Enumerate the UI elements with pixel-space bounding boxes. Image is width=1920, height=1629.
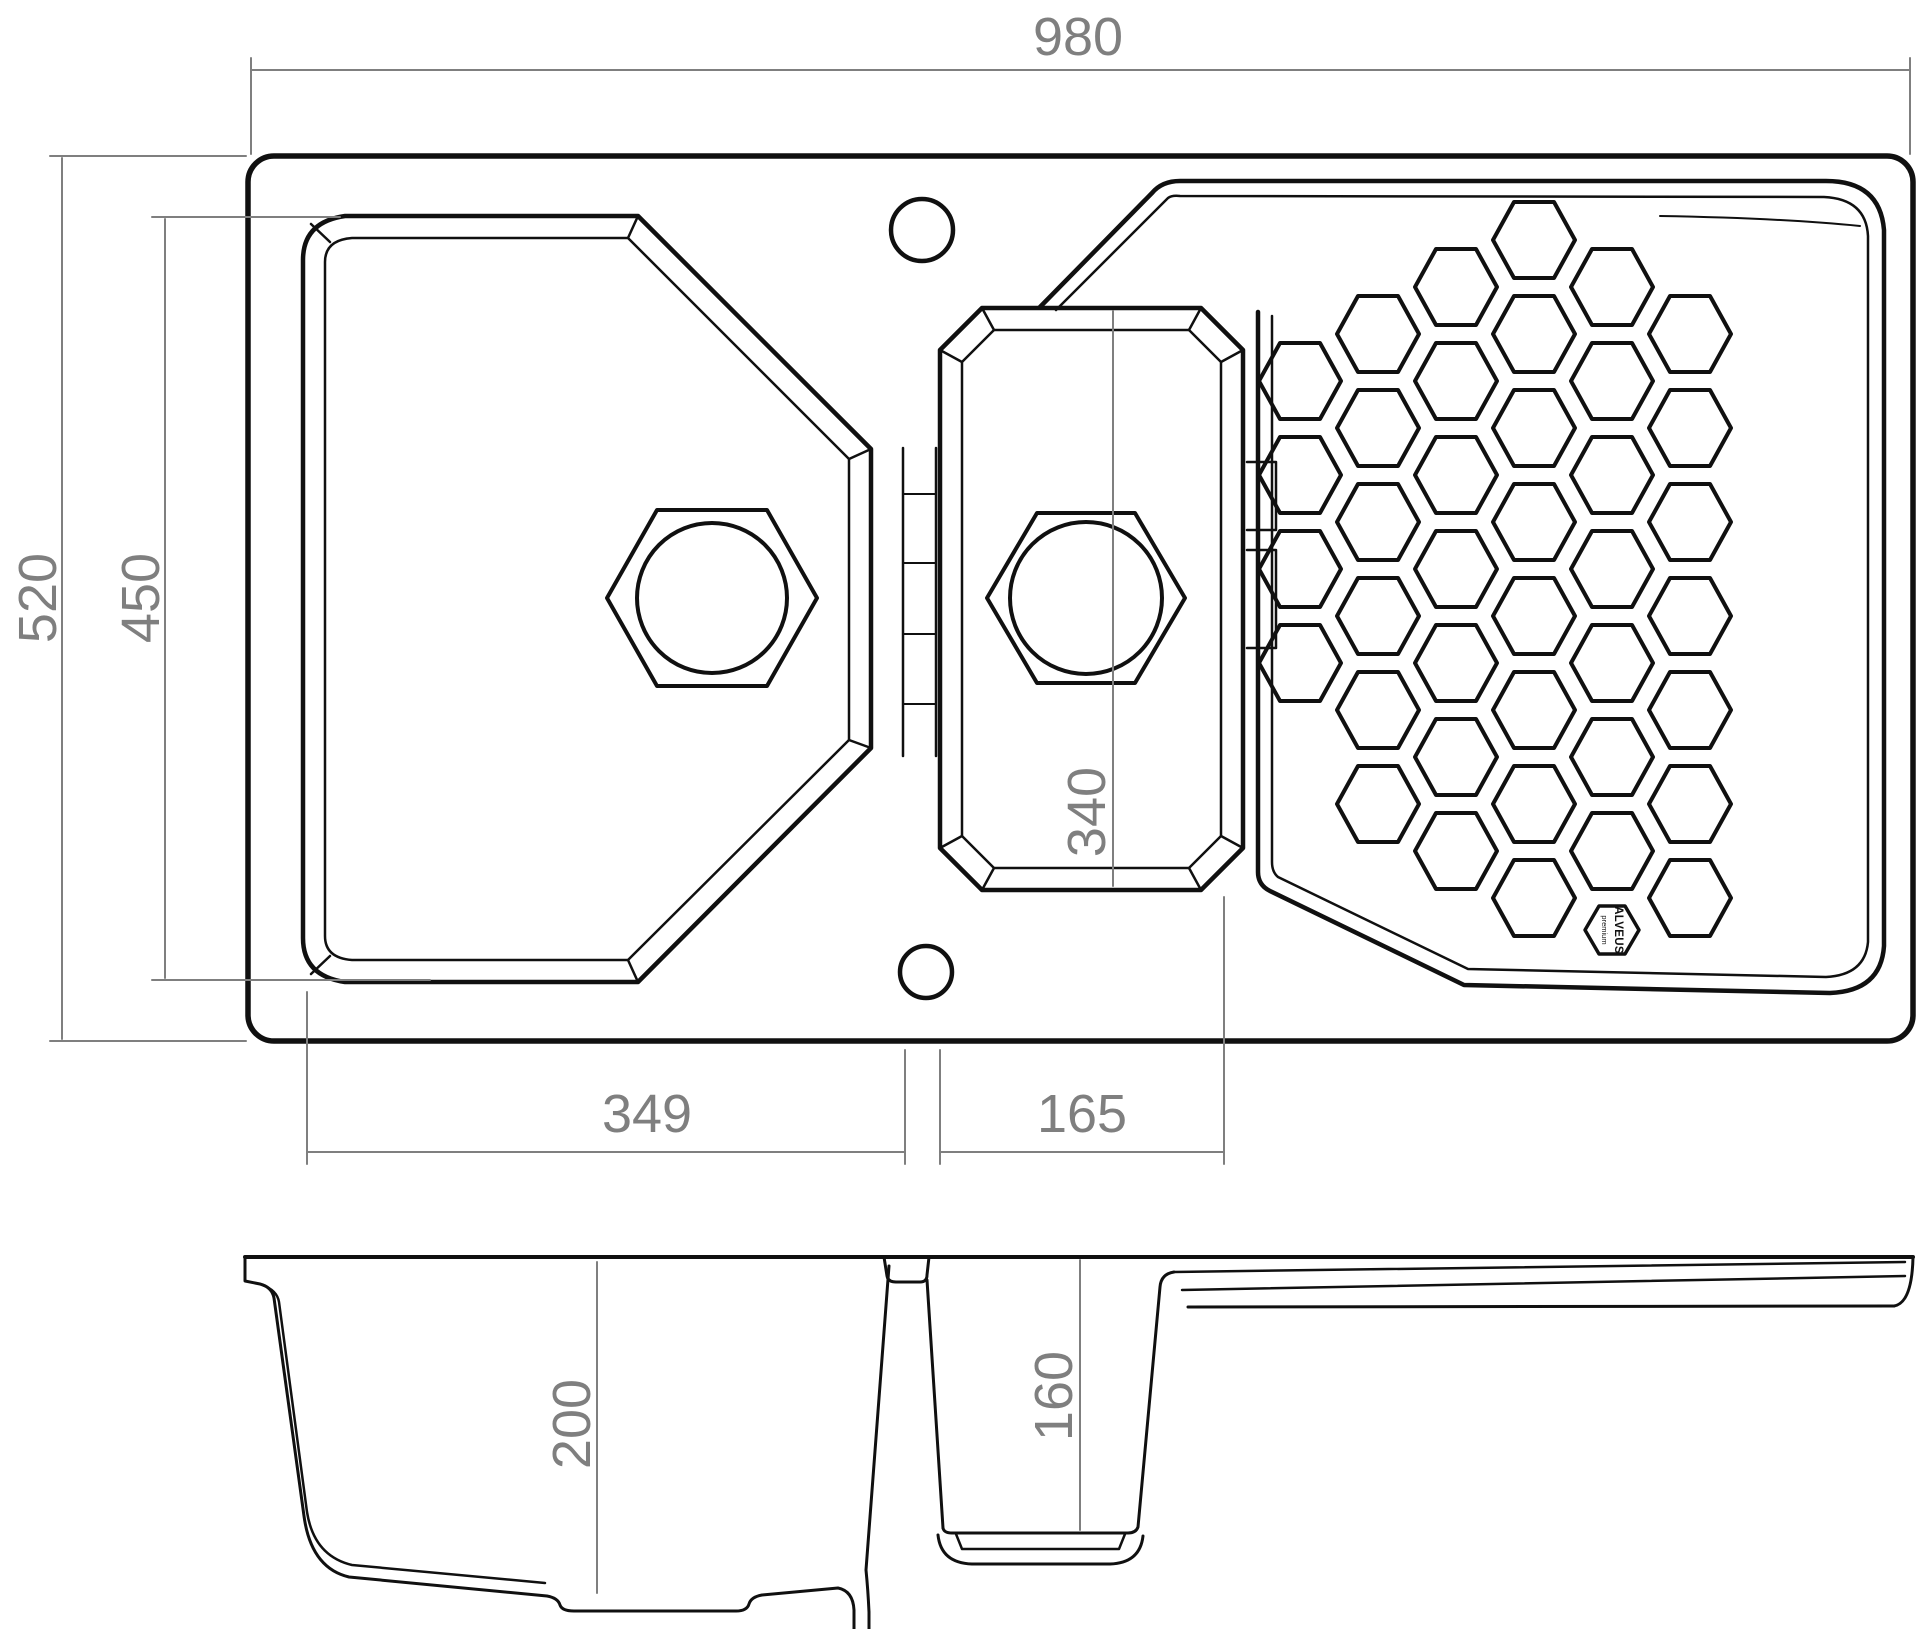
section-divider-notch — [884, 1257, 929, 1282]
dimension-value: 349 — [602, 1084, 692, 1144]
drainer-hexagon — [1649, 578, 1731, 654]
drainer-hexagon — [1415, 343, 1497, 419]
drainer-hexagon — [1493, 578, 1575, 654]
section-right-edge — [1894, 1257, 1913, 1306]
section-drainer-underside — [1188, 1306, 1894, 1307]
half-bowl-drain-circle — [1010, 522, 1162, 674]
drainer-hexagon — [1415, 813, 1497, 889]
main-bowl-drain — [607, 510, 817, 686]
section-drainer-surface-1 — [1174, 1262, 1905, 1272]
dimension-value: 520 — [8, 553, 68, 643]
drainer-hexagon — [1649, 484, 1731, 560]
dimension-value: 200 — [542, 1379, 602, 1469]
section-half-bowl-drain-recess — [956, 1534, 1125, 1549]
dimension-value: 340 — [1057, 767, 1117, 857]
drainer-outline — [1040, 181, 1884, 993]
dimension-bowl-zone-depth: 450 — [111, 217, 430, 980]
drainer-hexagon — [1493, 484, 1575, 560]
alveus-logo: ALVEUSpremium — [1585, 906, 1639, 954]
drainer-hexagon — [1337, 672, 1419, 748]
faucet-hole — [891, 199, 953, 261]
logo-brand-text: ALVEUS — [1612, 906, 1624, 954]
sink-outline — [248, 156, 1913, 1041]
drainer-hexagon — [1493, 296, 1575, 372]
drainer-hexagon — [1493, 860, 1575, 936]
dimension-overall-width: 980 — [251, 7, 1910, 154]
drainer-hexagon — [1571, 813, 1653, 889]
drainer-hexagon — [1493, 766, 1575, 842]
top-view — [248, 156, 1913, 1041]
drainer-hexagon — [1493, 202, 1575, 278]
drainer-hexagon — [1649, 296, 1731, 372]
drawing-canvas: ALVEUSpremium 980520450349165340200160 — [0, 0, 1920, 1629]
section-main-bowl-right-wall — [866, 1266, 889, 1629]
half-bowl-drain — [987, 513, 1185, 683]
logo-text-group: ALVEUSpremium — [1600, 906, 1624, 954]
dimension-half-bowl-width: 165 — [940, 897, 1224, 1164]
section-half-bowl-left-wall — [927, 1280, 943, 1528]
drainer-edge-detail — [1660, 216, 1860, 226]
drainer-hexagon — [1337, 578, 1419, 654]
dimension-annotations: 980520450349165340200160 — [8, 7, 1910, 1593]
section-main-bowl-inner-wall — [262, 1285, 545, 1583]
dimension-value: 980 — [1033, 7, 1123, 67]
drainer-hexagon — [1415, 249, 1497, 325]
drainer-hexagon — [1337, 484, 1419, 560]
dimension-half-bowl-depth: 160 — [1024, 1260, 1087, 1530]
dimension-value: 165 — [1037, 1084, 1127, 1144]
dimension-value: 450 — [111, 553, 171, 643]
drainer-hexagon — [1571, 531, 1653, 607]
drainer-hexagon — [1571, 719, 1653, 795]
logo-tagline-text: premium — [1600, 915, 1609, 944]
drainer-hexagon — [1493, 390, 1575, 466]
drainer-hexagon — [1571, 625, 1653, 701]
overflow-hole — [900, 946, 952, 998]
dimension-half-bowl-length: 340 — [1057, 311, 1120, 886]
main-bowl-drain-circle — [637, 523, 787, 673]
drainer-hexagon — [1493, 672, 1575, 748]
drainer-hexagon — [1337, 390, 1419, 466]
divider-rungs — [903, 494, 936, 704]
drain-holes — [607, 510, 1185, 686]
dimension-value: 160 — [1024, 1351, 1084, 1441]
honeycomb-pattern — [1259, 202, 1731, 936]
drainer-hexagon — [1415, 531, 1497, 607]
dimension-main-bowl-width: 349 — [307, 992, 905, 1164]
logo-hexagon-icon — [1585, 906, 1639, 954]
deck-holes — [891, 199, 953, 998]
drainer-hexagon — [1415, 719, 1497, 795]
drainer-hexagon — [1571, 437, 1653, 513]
drainer-hexagon — [1649, 860, 1731, 936]
drainer-hexagon — [1649, 672, 1731, 748]
drainer-hexagon — [1337, 766, 1419, 842]
dimension-main-bowl-depth: 200 — [542, 1262, 604, 1593]
drainer-hexagon — [1415, 437, 1497, 513]
drainer-hexagon — [1649, 766, 1731, 842]
section-drainer-surface-2 — [1182, 1276, 1905, 1290]
drainer-hexagon — [1571, 343, 1653, 419]
half-bowl-drain-hex — [987, 513, 1185, 683]
drainer-hexagon — [1571, 249, 1653, 325]
drainer-hexagon — [1337, 296, 1419, 372]
drainer-hexagon — [1415, 625, 1497, 701]
sink-technical-drawing: ALVEUSpremium 980520450349165340200160 — [0, 0, 1920, 1629]
drainer-hexagon — [1649, 390, 1731, 466]
